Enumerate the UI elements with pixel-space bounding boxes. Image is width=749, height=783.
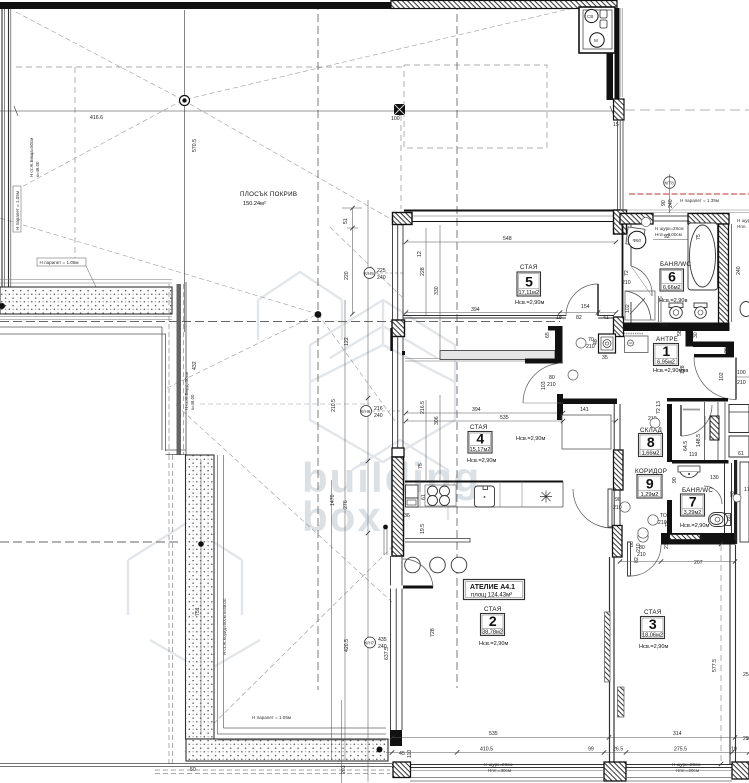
svg-text:8: 8 [647, 434, 655, 450]
svg-text:box: box [302, 493, 383, 540]
svg-text:Нсв.=2,90в: Нсв.=2,90в [659, 298, 688, 304]
svg-text:30: 30 [693, 332, 699, 338]
svg-text:1: 1 [662, 343, 670, 359]
svg-text:150.24м²: 150.24м² [243, 201, 266, 207]
svg-text:65: 65 [545, 332, 551, 338]
svg-text:Н щурк=28см: Н щурк=28см [655, 226, 683, 231]
svg-text:60: 60 [727, 515, 733, 521]
svg-text:АНТРЕ: АНТРЕ [656, 336, 678, 343]
svg-text:Нпл.: Нпл. [737, 224, 747, 229]
svg-text:6,66м2: 6,66м2 [663, 285, 681, 291]
svg-text:38,78м2: 38,78м2 [482, 629, 503, 635]
svg-text:216.5: 216.5 [420, 401, 426, 414]
svg-text:577.5: 577.5 [712, 659, 718, 672]
svg-text:728: 728 [430, 628, 436, 637]
svg-text:6,95м2: 6,95м2 [657, 359, 675, 365]
svg-text:275.5: 275.5 [674, 747, 687, 753]
svg-text:240: 240 [374, 413, 383, 419]
svg-text:СТАЯ: СТАЯ [644, 609, 662, 616]
svg-text:18,06м2: 18,06м2 [642, 632, 663, 638]
svg-text:Н щурк=28см: Н щурк=28см [672, 762, 700, 767]
svg-text:к=48.00: к=48.00 [190, 394, 195, 410]
svg-text:1,66м2: 1,66м2 [642, 450, 660, 456]
svg-text:394: 394 [471, 307, 480, 313]
svg-text:410.5: 410.5 [480, 747, 493, 753]
svg-text:61: 61 [421, 494, 427, 500]
svg-text:535: 535 [500, 415, 509, 421]
svg-text:314: 314 [673, 731, 682, 737]
svg-text:61: 61 [738, 451, 744, 457]
svg-text:548: 548 [503, 236, 512, 242]
svg-text:2: 2 [489, 613, 497, 629]
svg-text:Н ст.Ж.Корид=50см к=48.00: Н ст.Ж.Корид=50см к=48.00 [222, 598, 227, 655]
svg-text:141: 141 [580, 407, 589, 413]
svg-text:51: 51 [343, 218, 349, 224]
svg-text:119: 119 [689, 452, 697, 458]
svg-text:100: 100 [737, 370, 746, 376]
svg-text:72 13: 72 13 [656, 401, 662, 414]
svg-text:75: 75 [696, 234, 702, 240]
svg-text:110: 110 [407, 750, 413, 758]
svg-text:130: 130 [710, 475, 719, 481]
svg-text:432: 432 [192, 361, 198, 370]
svg-text:3,29м2: 3,29м2 [684, 510, 702, 516]
svg-text:50: 50 [190, 767, 196, 773]
svg-text:210: 210 [622, 280, 631, 286]
svg-text:БАНЯ/WC: БАНЯ/WC [660, 261, 691, 268]
svg-text:Н парапет = 1.05м: Н парапет = 1.05м [252, 715, 291, 720]
svg-text:Н щурк=28см: Н щурк=28см [484, 762, 512, 767]
svg-text:240: 240 [736, 266, 742, 275]
svg-text:82: 82 [576, 315, 582, 321]
svg-text:Н парапет = 1.05м: Н парапет = 1.05м [40, 260, 79, 265]
svg-text:19.5: 19.5 [420, 524, 426, 534]
svg-text:26: 26 [724, 347, 730, 353]
svg-text:Н щур: Н щур [737, 218, 749, 223]
svg-text:12: 12 [417, 251, 423, 257]
svg-text:207: 207 [694, 560, 703, 566]
svg-text:128: 128 [680, 365, 686, 374]
svg-text:90: 90 [661, 200, 667, 206]
svg-text:330: 330 [434, 286, 440, 295]
svg-text:751: 751 [195, 607, 201, 616]
svg-text:36: 36 [404, 513, 410, 519]
svg-text:416.6: 416.6 [90, 115, 103, 121]
svg-text:90: 90 [615, 497, 621, 503]
svg-text:210: 210 [637, 552, 646, 558]
svg-text:210.5: 210.5 [331, 399, 337, 412]
svg-text:Нсв.=2,90м: Нсв.=2,90м [479, 641, 509, 647]
svg-text:75: 75 [418, 463, 424, 469]
svg-text:570.5: 570.5 [192, 139, 198, 152]
svg-text:210: 210 [737, 380, 746, 386]
svg-text:Н парапет = 1.05м: Н парапет = 1.05м [15, 191, 20, 230]
svg-text:АТЕЛИЕ А4.1: АТЕЛИЕ А4.1 [470, 584, 515, 591]
svg-text:90: 90 [672, 477, 678, 483]
svg-text:220: 220 [344, 271, 350, 280]
svg-text:72: 72 [665, 521, 671, 527]
svg-text:Нпл.=20см: Нпл.=20см [676, 768, 699, 773]
svg-text:Н парапет = 1.35м: Н парапет = 1.35м [680, 198, 719, 203]
svg-text:45: 45 [399, 751, 405, 757]
svg-text:48: 48 [593, 339, 599, 345]
svg-text:15,17м2: 15,17м2 [470, 447, 491, 453]
svg-text:Нсв.=2,90м: Нсв.=2,90м [467, 458, 497, 464]
svg-text:ТО: ТО [660, 513, 667, 519]
svg-text:154: 154 [581, 304, 590, 310]
svg-text:СТАЯ: СТАЯ [484, 606, 502, 613]
svg-text:64.5: 64.5 [683, 441, 689, 451]
svg-text:203: 203 [341, 765, 347, 774]
svg-text:10: 10 [731, 747, 737, 753]
svg-text:К/Н5: К/Н5 [364, 271, 374, 276]
svg-text:102: 102 [625, 304, 631, 313]
svg-text:228: 228 [420, 267, 426, 276]
svg-text:18: 18 [556, 315, 562, 321]
svg-text:35: 35 [602, 355, 608, 361]
svg-text:435: 435 [378, 637, 387, 643]
svg-text:К/Н7: К/Н7 [365, 641, 375, 646]
svg-text:17,11м2: 17,11м2 [518, 290, 539, 296]
svg-text:99: 99 [588, 747, 594, 753]
svg-text:9: 9 [646, 476, 654, 492]
svg-text:К/Н6: К/Н6 [361, 409, 371, 414]
svg-text:535: 535 [489, 731, 498, 737]
svg-text:420.5: 420.5 [344, 639, 350, 652]
svg-text:к=48.00: к=48.00 [35, 161, 40, 177]
svg-text:80: 80 [639, 545, 645, 551]
svg-text:7: 7 [689, 494, 697, 510]
svg-text:92: 92 [664, 234, 670, 240]
svg-text:102: 102 [719, 372, 725, 381]
svg-text:4: 4 [476, 431, 484, 447]
svg-text:240: 240 [668, 199, 674, 208]
svg-text:122: 122 [344, 337, 350, 346]
svg-text:Нпл.=30см: Нпл.=30см [488, 768, 511, 773]
svg-text:БАНЯ/WC: БАНЯ/WC [682, 487, 713, 494]
svg-text:148.5: 148.5 [696, 434, 702, 447]
svg-text:25: 25 [743, 672, 749, 678]
svg-text:6: 6 [668, 269, 676, 285]
svg-text:Н ст.Ж.Бмща=50см: Н ст.Ж.Бмща=50см [29, 138, 34, 177]
svg-text:Нсв.=2,90м: Нсв.=2,90м [516, 436, 546, 442]
svg-text:26.5: 26.5 [613, 747, 623, 753]
svg-text:Ф60: Ф60 [633, 238, 642, 243]
svg-text:площ 124.43м²: площ 124.43м² [471, 593, 512, 599]
svg-text:Нсв.=2,90м: Нсв.=2,90м [515, 300, 545, 306]
svg-text:17: 17 [744, 487, 749, 493]
svg-text:Н ст.Ж.Бмрд=50см: Н ст.Ж.Бмрд=50см [184, 372, 189, 410]
svg-text:1470: 1470 [330, 494, 336, 506]
svg-text:СВ: СВ [587, 14, 593, 19]
svg-text:Нсв.=2,90м: Нсв.=2,90м [680, 523, 710, 529]
svg-text:100: 100 [391, 116, 400, 122]
svg-text:80: 80 [549, 375, 555, 381]
svg-text:3: 3 [649, 616, 657, 632]
svg-text:637.5: 637.5 [384, 647, 390, 660]
svg-text:58: 58 [677, 330, 683, 336]
svg-text:СТАЯ: СТАЯ [520, 264, 538, 271]
svg-text:276: 276 [343, 500, 349, 509]
svg-text:210: 210 [547, 382, 556, 388]
svg-text:М: М [594, 38, 598, 43]
svg-text:72: 72 [624, 270, 630, 276]
svg-text:41: 41 [603, 315, 609, 321]
svg-text:240: 240 [659, 323, 668, 329]
svg-text:Нсв.=2,90м: Нсв.=2,90м [639, 644, 669, 650]
svg-text:1,29м2: 1,29м2 [641, 492, 659, 498]
svg-text:240: 240 [377, 275, 386, 281]
svg-text:394: 394 [472, 407, 481, 413]
svg-text:306: 306 [434, 416, 440, 425]
svg-text:210: 210 [613, 505, 622, 511]
svg-text:ПЛОСЪК ПОКРИВ: ПЛОСЪК ПОКРИВ [240, 191, 297, 198]
svg-text:15: 15 [613, 122, 619, 128]
svg-text:5: 5 [525, 274, 533, 290]
